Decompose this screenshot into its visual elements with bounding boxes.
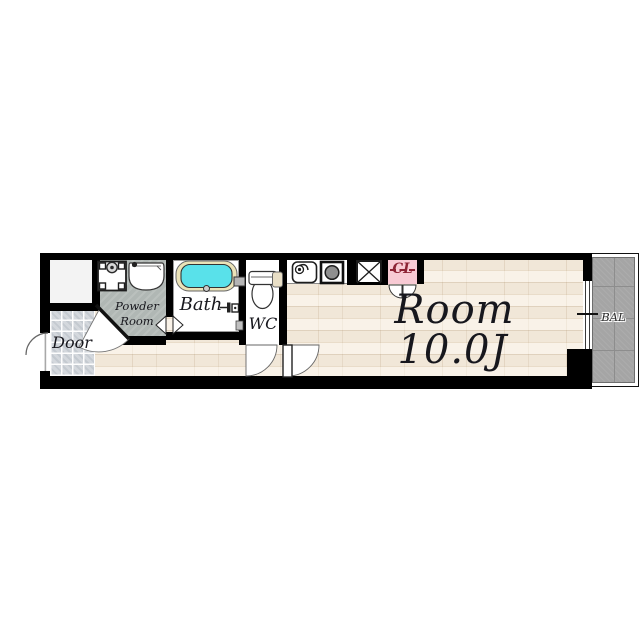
- sliding-window-icon: [583, 281, 592, 349]
- window-pane-line: [589, 281, 590, 349]
- powder-room-label-line1: Powder: [115, 299, 159, 313]
- window-pane-line: [585, 281, 586, 349]
- bath-label: Bath: [178, 295, 224, 316]
- floor-plan-canvas: Door Powder Room Bath WC CL Room 10.0J B…: [0, 0, 640, 640]
- powder-room-label-line2: Room: [120, 314, 153, 328]
- wc-label: WC: [248, 315, 278, 333]
- wall-left-lower: [40, 371, 50, 389]
- wall-bottom: [40, 376, 592, 389]
- wall-bath-bottom: [166, 332, 245, 340]
- kitchen-counter: [287, 260, 347, 284]
- wall-powder-bath: [166, 253, 173, 317]
- room-size-label: 10.0J: [390, 327, 515, 373]
- wall-powder-bottom: [121, 336, 166, 345]
- wall-corner-bottom-right: [567, 349, 592, 389]
- wall-shaft-underline: [347, 282, 388, 285]
- entrance-label: Door: [50, 334, 94, 352]
- powder-room-label: Powder Room: [107, 299, 167, 329]
- wall-storage-bottom: [40, 303, 100, 311]
- wall-bath-wc: [239, 253, 246, 345]
- wall-right-upper: [583, 253, 592, 281]
- closet-label: CL: [388, 262, 417, 278]
- entrance-door-arc-icon: [26, 333, 48, 371]
- wall-wc-right: [279, 253, 287, 345]
- balcony-label: BAL: [594, 311, 633, 324]
- pipe-shaft-box: [356, 260, 382, 284]
- wall-top: [40, 253, 592, 260]
- wall-left-upper: [40, 253, 50, 333]
- storage-closet-box: [50, 260, 92, 303]
- wall-closet-right: [417, 253, 424, 284]
- wall-counter-shaft: [347, 253, 356, 284]
